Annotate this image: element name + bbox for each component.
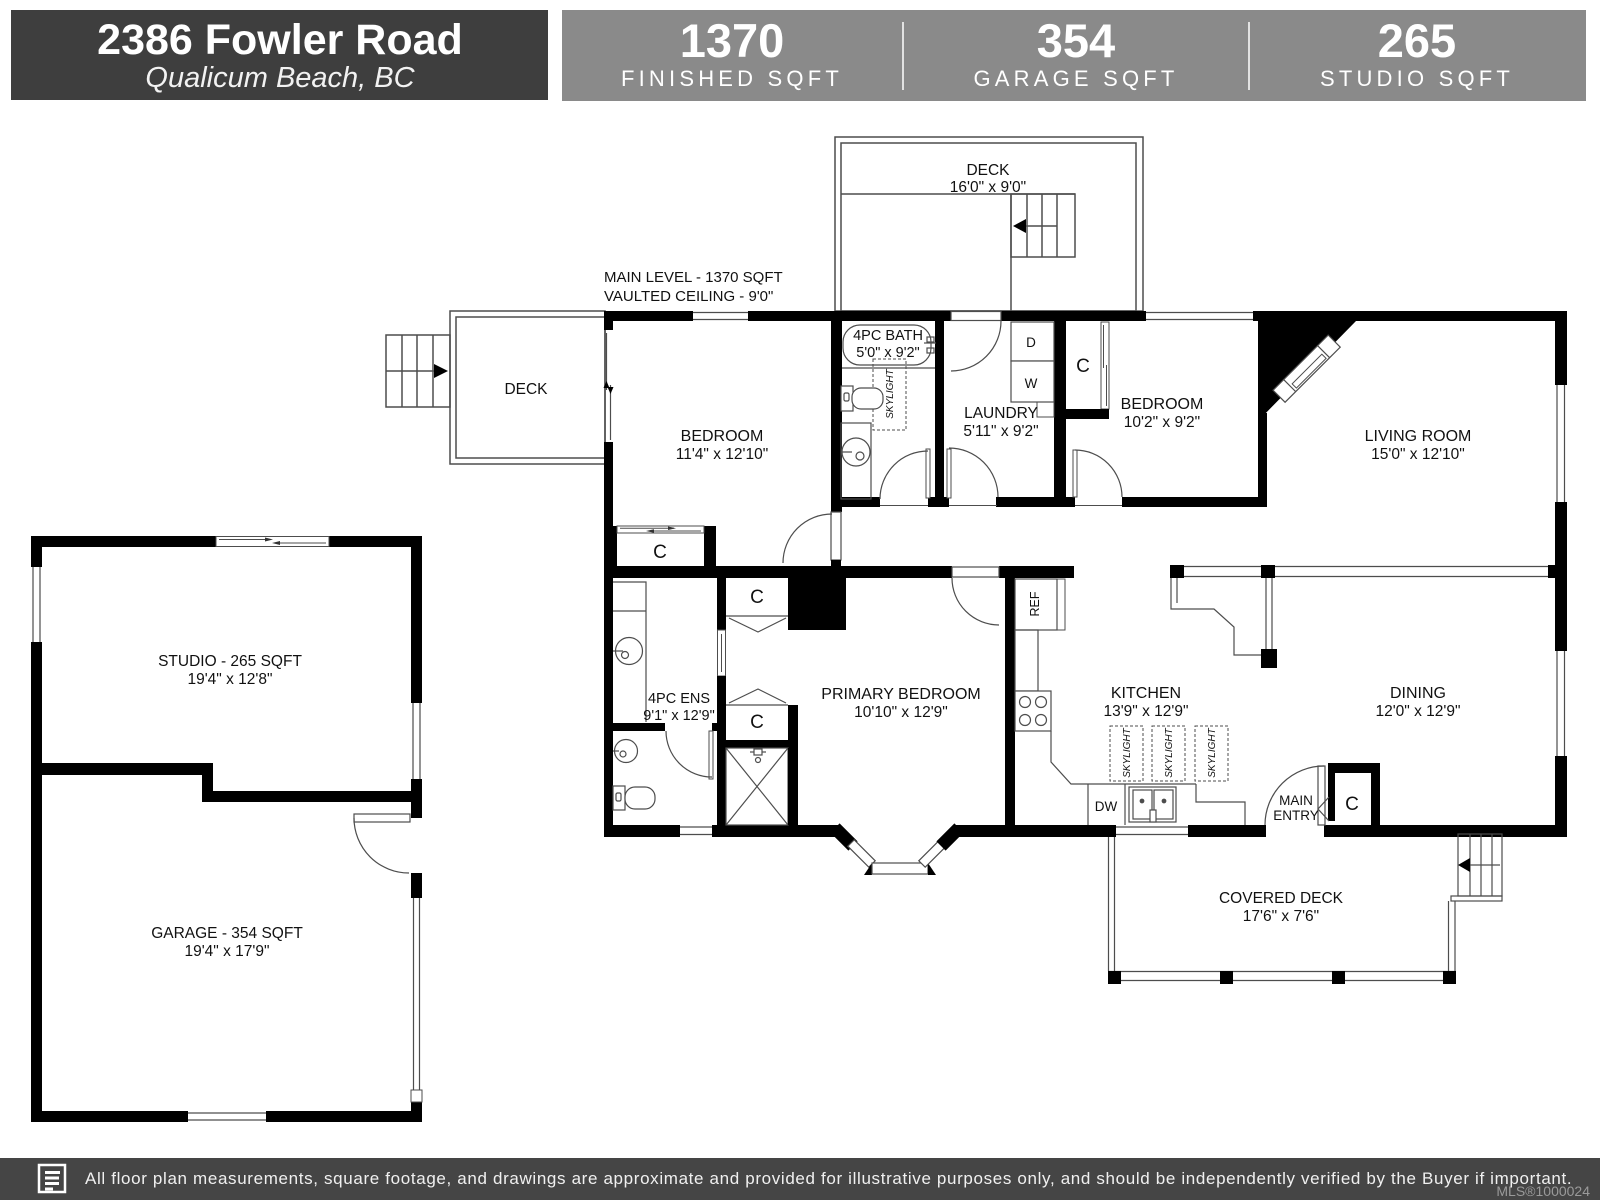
svg-text:1370: 1370: [680, 14, 785, 67]
svg-text:COVERED DECK: COVERED DECK: [1219, 890, 1344, 907]
svg-text:C: C: [653, 542, 667, 563]
svg-text:16'0" x 9'0": 16'0" x 9'0": [950, 179, 1026, 196]
svg-text:Qualicum Beach, BC: Qualicum Beach, BC: [145, 62, 415, 94]
svg-text:GARAGE - 354 SQFT: GARAGE - 354 SQFT: [151, 925, 303, 942]
svg-text:DW: DW: [1095, 799, 1118, 814]
svg-text:4PC BATH: 4PC BATH: [853, 328, 923, 344]
svg-text:12'0" x 12'9": 12'0" x 12'9": [1375, 703, 1460, 720]
svg-text:MAIN LEVEL - 1370 SQFT: MAIN LEVEL - 1370 SQFT: [604, 269, 783, 286]
svg-text:9'1" x 12'9": 9'1" x 12'9": [643, 708, 714, 724]
svg-text:SKYLIGHT: SKYLIGHT: [1207, 727, 1218, 777]
svg-text:LIVING ROOM: LIVING ROOM: [1365, 428, 1472, 445]
svg-text:DECK: DECK: [504, 381, 548, 398]
svg-text:GARAGE SQFT: GARAGE SQFT: [973, 66, 1178, 91]
svg-text:10'10" x 12'9": 10'10" x 12'9": [854, 704, 948, 721]
svg-text:MAIN: MAIN: [1279, 793, 1313, 808]
svg-text:15'0" x 12'10": 15'0" x 12'10": [1371, 446, 1465, 463]
svg-text:13'9" x 12'9": 13'9" x 12'9": [1103, 703, 1188, 720]
svg-text:C: C: [1345, 794, 1359, 815]
svg-text:STUDIO - 265 SQFT: STUDIO - 265 SQFT: [158, 653, 302, 670]
svg-text:FINISHED SQFT: FINISHED SQFT: [621, 66, 843, 91]
svg-text:19'4" x 17'9": 19'4" x 17'9": [184, 943, 269, 960]
svg-text:SKYLIGHT: SKYLIGHT: [1164, 727, 1175, 777]
svg-text:DECK: DECK: [966, 162, 1010, 179]
svg-text:DINING: DINING: [1390, 685, 1446, 702]
svg-text:4PC ENS: 4PC ENS: [648, 691, 710, 707]
svg-text:LAUNDRY: LAUNDRY: [964, 405, 1038, 422]
svg-text:STUDIO SQFT: STUDIO SQFT: [1320, 66, 1514, 91]
svg-text:2386 Fowler Road: 2386 Fowler Road: [97, 16, 463, 64]
svg-text:BEDROOM: BEDROOM: [1121, 396, 1204, 413]
svg-text:All floor plan measurements, s: All floor plan measurements, square foot…: [85, 1169, 1572, 1188]
svg-text:BEDROOM: BEDROOM: [681, 428, 764, 445]
svg-text:5'11" x 9'2": 5'11" x 9'2": [963, 423, 1038, 440]
svg-text:VAULTED CEILING - 9'0": VAULTED CEILING - 9'0": [604, 288, 773, 305]
svg-text:SKYLIGHT: SKYLIGHT: [885, 368, 896, 418]
svg-text:D: D: [1026, 335, 1036, 350]
svg-text:5'0" x 9'2": 5'0" x 9'2": [856, 345, 919, 361]
svg-text:17'6" x 7'6": 17'6" x 7'6": [1243, 908, 1319, 925]
svg-text:C: C: [750, 712, 764, 733]
svg-text:C: C: [1076, 356, 1090, 377]
svg-text:ENTRY: ENTRY: [1273, 808, 1319, 823]
svg-text:SKYLIGHT: SKYLIGHT: [1122, 727, 1133, 777]
svg-text:W: W: [1025, 376, 1038, 391]
svg-text:354: 354: [1037, 14, 1115, 67]
svg-text:265: 265: [1378, 14, 1456, 67]
svg-text:KITCHEN: KITCHEN: [1111, 685, 1181, 702]
svg-text:C: C: [750, 587, 764, 608]
svg-text:10'2" x 9'2": 10'2" x 9'2": [1124, 414, 1200, 431]
svg-text:11'4" x 12'10": 11'4" x 12'10": [676, 446, 768, 463]
svg-text:PRIMARY BEDROOM: PRIMARY BEDROOM: [821, 686, 980, 703]
svg-text:MLS®1000024: MLS®1000024: [1496, 1183, 1590, 1199]
svg-text:19'4" x 12'8": 19'4" x 12'8": [187, 671, 272, 688]
svg-text:REF: REF: [1028, 591, 1042, 616]
